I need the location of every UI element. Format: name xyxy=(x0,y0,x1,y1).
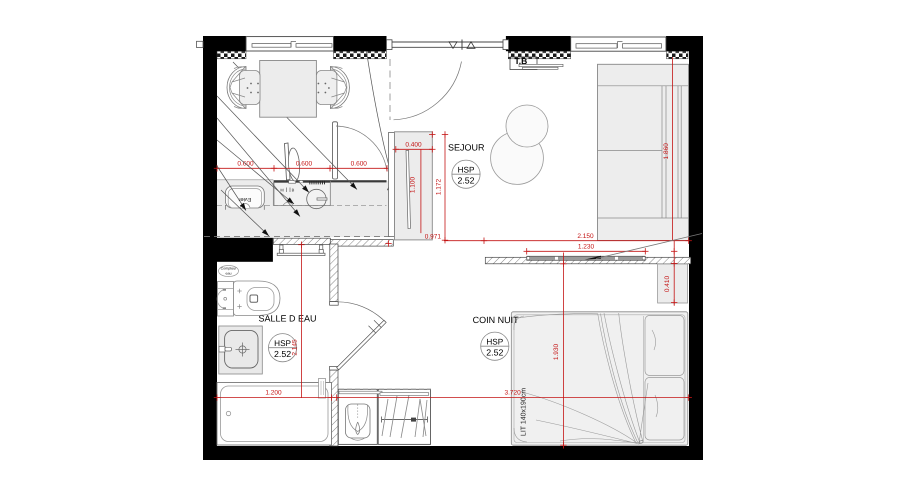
svg-text:2.52: 2.52 xyxy=(486,348,503,358)
svg-text:2.52: 2.52 xyxy=(274,349,291,359)
svg-text:0.410: 0.410 xyxy=(664,275,671,292)
svg-text:0.971: 0.971 xyxy=(425,234,442,241)
svg-text:0.600: 0.600 xyxy=(351,160,368,167)
svg-text:LIT 140x190cm: LIT 140x190cm xyxy=(521,388,528,436)
svg-text:Compteur: Compteur xyxy=(221,267,238,271)
svg-text:1.860: 1.860 xyxy=(663,143,670,160)
svg-text:1.100: 1.100 xyxy=(410,176,417,193)
svg-text:SEJOUR: SEJOUR xyxy=(448,143,485,153)
svg-text:1.930: 1.930 xyxy=(553,343,560,360)
svg-text:0.600: 0.600 xyxy=(296,160,313,167)
svg-text:2.52: 2.52 xyxy=(457,176,474,186)
svg-text:1.200: 1.200 xyxy=(265,390,282,397)
svg-text:0.400: 0.400 xyxy=(405,141,422,148)
svg-text:HSP: HSP xyxy=(486,337,503,346)
svg-text:eau: eau xyxy=(226,272,232,276)
svg-text:HSP: HSP xyxy=(274,339,291,348)
svg-text:1.230: 1.230 xyxy=(578,243,595,250)
svg-text:Evier: Evier xyxy=(239,196,252,202)
svg-text:1.172: 1.172 xyxy=(435,178,442,195)
svg-text:2.150: 2.150 xyxy=(577,233,594,240)
svg-text:COIN NUIT: COIN NUIT xyxy=(473,315,519,325)
svg-text:B: B xyxy=(292,188,295,193)
svg-text:M: M xyxy=(280,188,283,193)
svg-text:HSP: HSP xyxy=(458,165,475,174)
svg-text:SALLE D EAU: SALLE D EAU xyxy=(259,314,317,324)
svg-text:2.145: 2.145 xyxy=(292,339,299,356)
svg-text:3.720: 3.720 xyxy=(504,390,521,397)
